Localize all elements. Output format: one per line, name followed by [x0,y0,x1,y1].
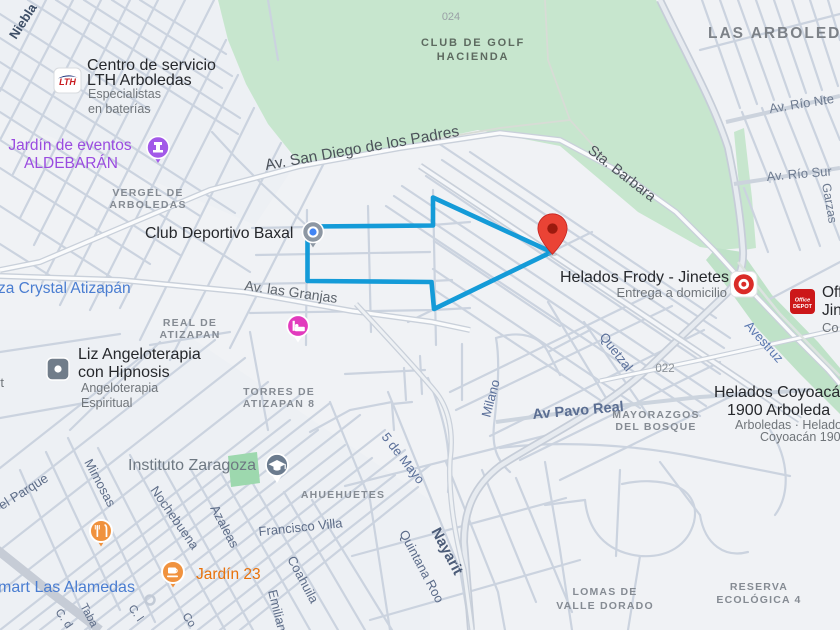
svg-text:024: 024 [442,11,460,23]
svg-text:LOMAS DE: LOMAS DE [572,586,637,598]
svg-text:LAS ARBOLEDAS: LAS ARBOLEDAS [708,25,840,42]
svg-text:za Crystal Atizapán: za Crystal Atizapán [0,280,131,297]
svg-text:HACIENDA: HACIENDA [437,51,509,63]
svg-text:AHUEHUETES: AHUEHUETES [301,489,385,501]
svg-text:REAL DE: REAL DE [163,317,217,329]
svg-text:Jardín 23: Jardín 23 [196,566,261,583]
svg-text:ATIZAPAN 8: ATIZAPAN 8 [243,398,315,410]
svg-text:Especialistas: Especialistas [88,87,161,101]
svg-text:VALLE DORADO: VALLE DORADO [556,600,654,612]
svg-text:Entrega a domicilio: Entrega a domicilio [616,285,727,300]
svg-text:Jardín de eventos: Jardín de eventos [8,137,131,154]
svg-text:LTH: LTH [59,77,76,87]
svg-text:ARBOLEDAS: ARBOLEDAS [109,199,186,211]
svg-text:VERGEL DE: VERGEL DE [112,187,183,199]
svg-text:022: 022 [655,363,674,375]
svg-text:ALDEBARÁN: ALDEBARÁN [24,155,118,172]
svg-text:con Hipnosis: con Hipnosis [78,364,170,381]
svg-text:Jine: Jine [822,302,840,319]
svg-text:TORRES DE: TORRES DE [243,386,315,398]
svg-text:ATIZAPAN: ATIZAPAN [159,329,220,341]
svg-text:RESERVA: RESERVA [730,581,788,593]
svg-text:MAYORAZGOS: MAYORAZGOS [612,409,699,421]
svg-text:Espiritual: Espiritual [81,396,132,410]
svg-text:Angeloterapia: Angeloterapia [81,381,158,395]
svg-text:Coyoacán 190: Coyoacán 190 [760,430,840,444]
svg-text:ECOLÓGICA 4: ECOLÓGICA 4 [716,593,801,606]
svg-text:DEL BOSQUE: DEL BOSQUE [615,421,696,433]
svg-text:Helados Coyoacán: Helados Coyoacán [714,384,840,401]
svg-text:Office: Office [795,298,811,304]
svg-text:Liz Angeloterapia: Liz Angeloterapia [78,346,201,363]
svg-text:Instituto Zaragoza: Instituto Zaragoza [128,457,256,474]
svg-text:Co: Co [822,320,839,335]
svg-text:mart Las Alamedas: mart Las Alamedas [0,579,135,596]
svg-text:1900 Arboleda: 1900 Arboleda [727,402,830,419]
svg-text:en baterías: en baterías [88,102,151,116]
svg-text:rt: rt [0,375,4,390]
svg-text:Helados Frody - Jinetes: Helados Frody - Jinetes [560,269,729,286]
svg-text:DEPOT: DEPOT [793,304,813,310]
svg-text:Offi: Offi [822,284,840,301]
svg-text:CLUB DE GOLF: CLUB DE GOLF [421,37,525,49]
svg-text:Club Deportivo Baxal: Club Deportivo Baxal [145,225,293,242]
